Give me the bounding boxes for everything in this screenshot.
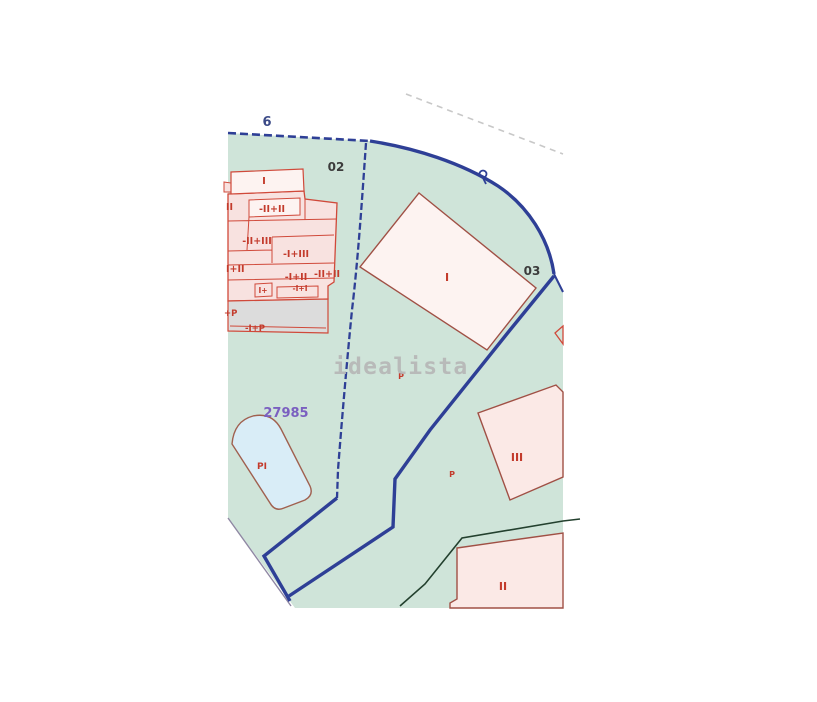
cluster-label-ii-ii: -II+II — [259, 204, 285, 215]
building-iii-label: III — [511, 451, 523, 464]
cluster-label-i-ii-left: I+II — [226, 264, 245, 275]
plot-code-label: 27985 — [263, 406, 308, 421]
cadastral-map-viewport[interactable]: 6 02 03 27985 I II -II+II -II+III -I+III… — [0, 0, 817, 702]
subparcel-02-label: 02 — [328, 160, 345, 174]
idealista-watermark: idealista — [333, 354, 468, 380]
cluster-label-ii-ii-right: -II+II — [314, 269, 340, 280]
cluster-label-top-i: I — [262, 176, 266, 187]
cluster-top-building — [231, 169, 304, 194]
subparcel-03-label: 03 — [524, 264, 541, 278]
cluster-label-i-p: -I+P — [245, 324, 265, 334]
cluster-label-i-i: -I+I — [293, 284, 308, 293]
parcel-number-label: 6 — [262, 115, 271, 130]
cluster-label-ii-iii: -II+III — [242, 236, 272, 247]
cluster-label-plus-p: +P — [224, 309, 237, 319]
cluster-label-ii: II — [226, 202, 233, 213]
building-i-label: I — [445, 271, 449, 284]
building-ii-label: II — [499, 580, 507, 593]
road-edge-dashed-line — [406, 94, 563, 154]
cluster-label-i-ii: -I+II — [285, 272, 308, 283]
cluster-label-i-iii: -I+III — [283, 249, 309, 260]
cadastral-map: 6 02 03 27985 I II -II+II -II+III -I+III… — [0, 0, 817, 702]
cluster-fragment — [224, 182, 231, 192]
cluster-label-i-plus: I+ — [258, 286, 267, 295]
pool-label: PI — [257, 462, 267, 472]
parking-label-right: P — [449, 470, 455, 479]
